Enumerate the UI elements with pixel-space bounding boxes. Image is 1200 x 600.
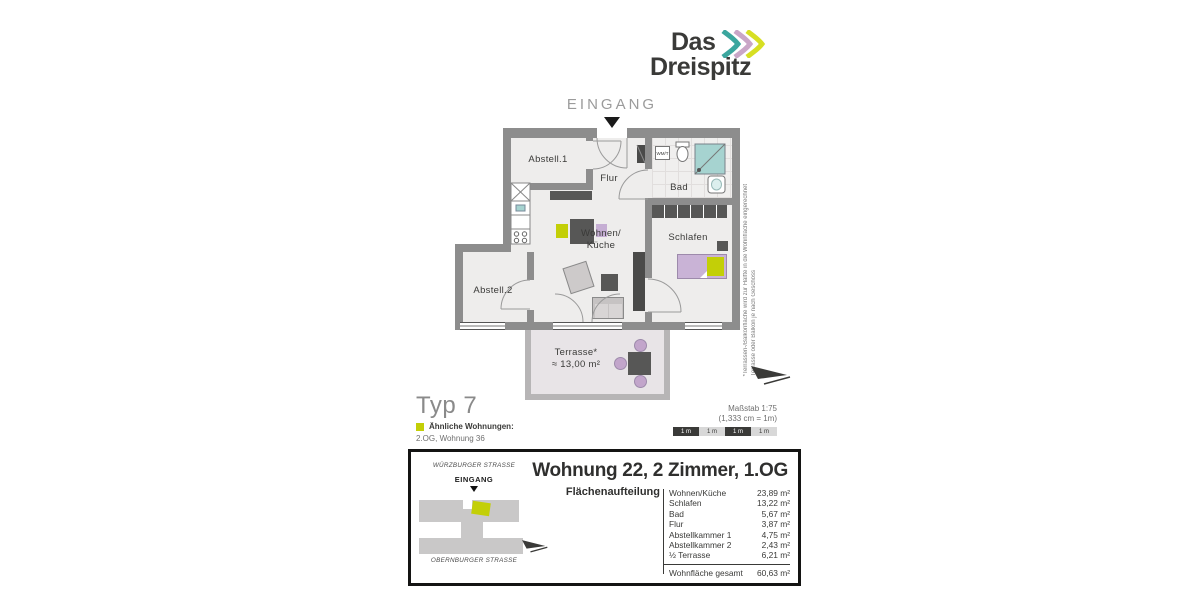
table-total-row: Wohnfläche gesamt 60,63 m² (669, 568, 790, 578)
table-row: Flur3,87 m² (669, 519, 790, 529)
minimap-north-arrow-icon (521, 535, 549, 557)
similar-units-swatch (416, 423, 424, 431)
street-name-bottom: OBERNBURGER STRASSE (411, 557, 537, 564)
table-row: Abstellkammer 22,43 m² (669, 540, 790, 550)
scale-text: Maßstab 1:75 (1,333 cm = 1m) (657, 404, 777, 423)
floor-plan: WM/T (455, 125, 740, 405)
table-row: Bad5,67 m² (669, 509, 790, 519)
area-table-title: Flächenaufteilung (566, 486, 660, 498)
minimap-unit-highlight (471, 501, 491, 516)
brand-name-line2: Dreispitz (650, 55, 751, 80)
similar-units-value: 2.OG, Wohnung 36 (416, 434, 485, 443)
scale-conversion: (1,333 cm = 1m) (657, 414, 777, 424)
scale-bar: 1 m 1 m 1 m 1 m (673, 427, 777, 436)
area-table: Wohnen/Küche23,89 m² Schlafen13,22 m² Ba… (669, 488, 790, 561)
room-label-schlafen: Schlafen (668, 232, 707, 244)
scale-segment: 1 m (673, 427, 699, 436)
room-label-wohnen: Wohnen/ Küche (581, 228, 621, 252)
street-name-top: WÜRZBURGER STRASSE (411, 462, 537, 469)
terrace-footnote: *Terrassen-/Balkonfläche wird zur Hälfte… (742, 178, 758, 376)
room-label-terrasse: Terrasse* ≈ 13,00 m² (552, 347, 600, 371)
table-row: Abstellkammer 14,75 m² (669, 530, 790, 540)
minimap-entrance-label: EINGANG (411, 475, 537, 484)
entrance-label: EINGANG (532, 96, 692, 113)
table-divider-horizontal (663, 564, 790, 565)
total-label: Wohnfläche gesamt (669, 568, 743, 578)
minimap-entrance-arrow-icon (470, 486, 478, 492)
minimap-building-bottom (419, 538, 523, 554)
scale-segment: 1 m (725, 427, 751, 436)
scale-label: Maßstab 1:75 (657, 404, 777, 414)
table-row: Schlafen13,22 m² (669, 498, 790, 508)
apartment-info-box: WÜRZBURGER STRASSE EINGANG OBERNBURGER S… (408, 449, 801, 586)
total-value: 60,63 m² (757, 568, 790, 578)
table-row: Wohnen/Küche23,89 m² (669, 488, 790, 498)
brand-logo: Das Dreispitz (650, 28, 800, 86)
room-label-flur: Flur (600, 173, 618, 185)
footnote-line1: *Terrassen-/Balkonfläche wird zur Hälfte… (742, 184, 750, 376)
table-row: ½ Terrasse6,21 m² (669, 550, 790, 560)
scale-segment: 1 m (699, 427, 725, 436)
minimap-entrance-notch (463, 500, 472, 509)
apartment-title: Wohnung 22, 2 Zimmer, 1.OG (532, 460, 788, 482)
scale-segment: 1 m (751, 427, 777, 436)
north-arrow-icon (750, 358, 792, 392)
type-label: Typ 7 (416, 392, 477, 420)
similar-units-title: Ähnliche Wohnungen: (429, 422, 514, 431)
brand-name-line1: Das (671, 30, 715, 55)
room-label-bad: Bad (670, 182, 688, 194)
room-label-abstell2: Abstell.2 (473, 285, 512, 297)
minimap-building-connector (461, 522, 483, 538)
room-label-abstell1: Abstell.1 (528, 154, 567, 166)
table-divider-vertical (663, 489, 664, 574)
